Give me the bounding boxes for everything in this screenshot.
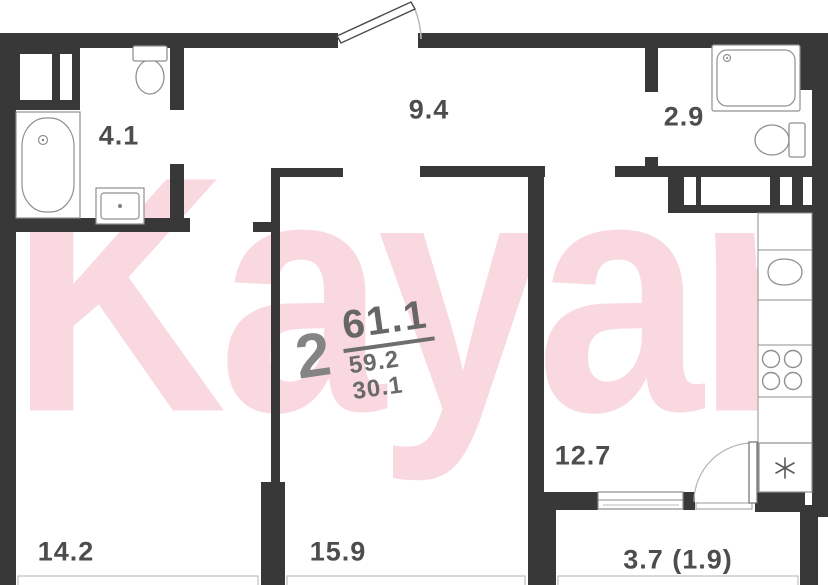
label-kitchen-area: 12.7 (555, 441, 612, 472)
balcony-door-arc (694, 443, 753, 502)
wall-hall-seg-a (271, 168, 343, 177)
entrance-door-leaf (337, 2, 415, 43)
label-hallway-area: 9.4 (409, 95, 450, 126)
bottom-windows (18, 576, 798, 585)
vent-shaft (14, 48, 80, 110)
unit-info: 2 61.1 59.2 30.1 (290, 294, 443, 412)
balcony-door (694, 442, 757, 509)
toilet-shower-room (755, 123, 805, 157)
kitchen-sink-icon (768, 259, 802, 285)
wall-kitchen-left (528, 166, 544, 492)
wall-top-left (0, 33, 338, 48)
wall-stub-hall (253, 222, 272, 232)
wall-right-upper (812, 33, 828, 517)
label-room-middle-area: 15.9 (310, 537, 367, 568)
wall-shower-stub-upper (645, 48, 658, 92)
fridge-icon (759, 443, 812, 492)
balcony-door-leaf (749, 442, 757, 503)
sink-bathroom (96, 188, 144, 224)
label-bathroom-area: 4.1 (99, 121, 140, 152)
wall-rooms-divider-thick (261, 482, 285, 585)
wall-shower-bottom (615, 166, 812, 177)
wall-right-lower (800, 505, 818, 585)
wall-rooms-divider (271, 168, 280, 482)
unit-area-fraction: 61.1 59.2 30.1 (338, 294, 443, 406)
floor-plan: Kayan (0, 0, 828, 585)
wall-left (0, 33, 16, 585)
wall-kitchen-bottom-mid (683, 492, 695, 510)
label-shower-room-area: 2.9 (664, 102, 705, 133)
label-balcony-area: 3.7 (1.9) (623, 545, 733, 576)
wall-bathroom-right-upper (170, 48, 184, 110)
wardrobe (668, 177, 812, 213)
unit-rooms-count: 2 (292, 326, 334, 386)
bathtub (16, 112, 80, 218)
label-room-left-area: 14.2 (38, 537, 95, 568)
wall-bathroom-bottom (0, 218, 190, 232)
wall-shower-stub-lower (645, 157, 658, 167)
wall-bathroom-right-lower (170, 164, 184, 218)
wall-kitchen-bottom-right (755, 492, 805, 512)
entrance-door (337, 2, 421, 43)
wall-hall-seg-b (420, 166, 545, 177)
balcony-door-threshold (696, 503, 752, 509)
duct-right (800, 48, 812, 90)
kitchen-window (598, 492, 683, 509)
wall-kitchen-bottom-left (544, 492, 598, 510)
shower-tray (712, 45, 800, 111)
floor-plan-drawing (0, 0, 828, 585)
toilet-bathroom (133, 46, 167, 94)
